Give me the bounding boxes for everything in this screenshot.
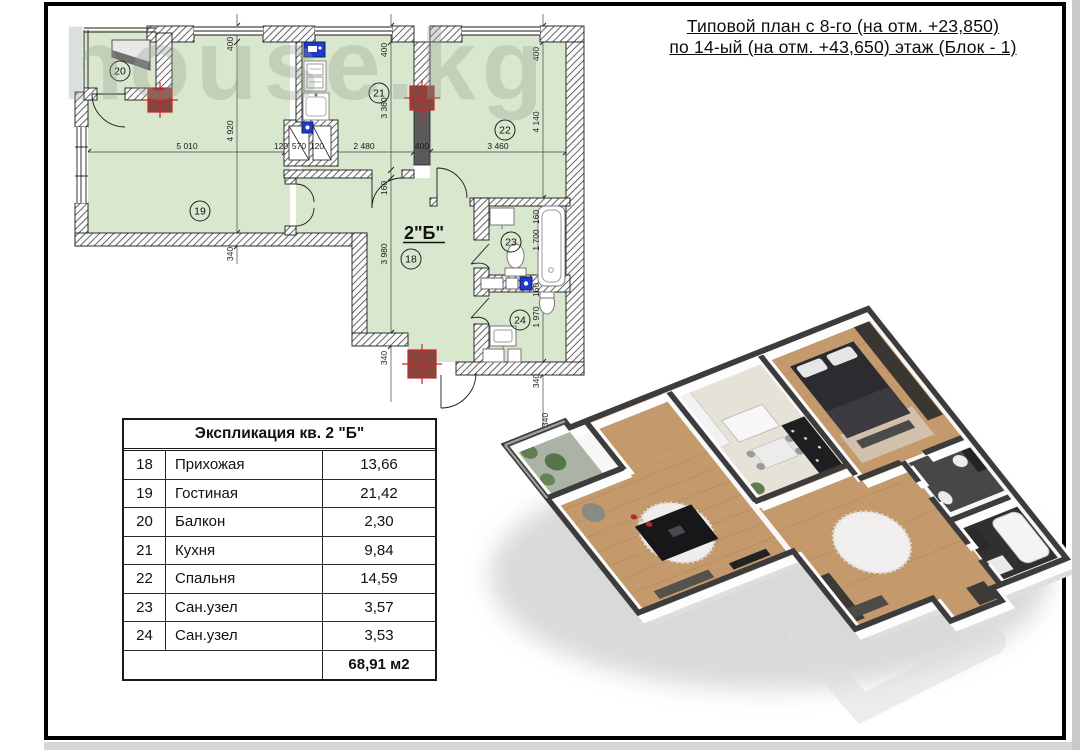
room-area: 21,42	[323, 480, 435, 508]
apartment-label: 2"Б"	[403, 223, 445, 243]
scan-edge	[1072, 0, 1080, 750]
kitchen-fixtures	[302, 42, 329, 133]
room-area: 13,66	[323, 451, 435, 479]
room-name: Сан.узел	[166, 594, 323, 622]
explication-table: Экспликация кв. 2 "Б" 18 Прихожая 13,66 …	[122, 418, 437, 681]
dim-label: 5 010	[176, 141, 198, 151]
dim-label: 160	[379, 181, 389, 195]
room-area: 3,53	[323, 622, 435, 650]
table-total-row: 68,91 м2	[124, 651, 435, 679]
plan-2d: 5 010 120 570 120 2 480 400 3 460 400 4 …	[75, 14, 584, 434]
dim-label: 400	[225, 37, 235, 51]
room-number: 18	[124, 451, 166, 479]
drawing-sheet: 5 010 120 570 120 2 480 400 3 460 400 4 …	[0, 0, 1080, 750]
sheet-title-line2: по 14-ый (на отм. +43,650) этаж (Блок - …	[648, 37, 1038, 58]
room-number: 22	[124, 565, 166, 593]
sheet-title: Типовой план с 8-го (на отм. +23,850) по…	[648, 16, 1038, 58]
svg-text:24: 24	[514, 315, 526, 327]
room-number: 23	[124, 594, 166, 622]
table-row: 20 Балкон 2,30	[124, 508, 435, 537]
table-row: 24 Сан.узел 3,53	[124, 622, 435, 651]
dim-label: 1 700	[531, 229, 541, 251]
room-name: Прихожая	[166, 451, 323, 479]
dim-label: 160	[531, 210, 541, 224]
table-row: 18 Прихожая 13,66	[124, 451, 435, 480]
dim-label: 4 140	[531, 111, 541, 133]
dim-label: 400	[379, 43, 389, 57]
room-name: Гостиная	[166, 480, 323, 508]
bath-divider-fixtures	[481, 277, 532, 290]
dim-label: 4 920	[225, 120, 235, 142]
total-area: 68,91 м2	[323, 651, 435, 679]
dim-label: 1 970	[531, 306, 541, 328]
svg-text:20: 20	[114, 66, 126, 78]
svg-text:18: 18	[405, 254, 417, 266]
room-area: 3,57	[323, 594, 435, 622]
room-name: Спальня	[166, 565, 323, 593]
room-name: Сан.узел	[166, 622, 323, 650]
room-number: 24	[124, 622, 166, 650]
svg-text:2"Б": 2"Б"	[404, 223, 444, 243]
dim-label: 120	[274, 141, 288, 151]
dim-label: 570	[292, 141, 306, 151]
room-area: 2,30	[323, 508, 435, 536]
room-area: 14,59	[323, 565, 435, 593]
room-name: Кухня	[166, 537, 323, 565]
dim-label: 3 360	[379, 97, 389, 119]
dim-label: 340	[379, 351, 389, 365]
dim-label: 120	[310, 141, 324, 151]
sheet-title-line1: Типовой план с 8-го (на отм. +23,850)	[648, 16, 1038, 37]
svg-text:21: 21	[373, 88, 385, 100]
room-number: 20	[124, 508, 166, 536]
toilet-tank-icon	[505, 268, 526, 276]
dim-label: 340	[531, 374, 541, 388]
dim-label: 3 980	[379, 243, 389, 265]
dim-label: 400	[531, 47, 541, 61]
room-number: 21	[124, 537, 166, 565]
table-row: 21 Кухня 9,84	[124, 537, 435, 566]
dim-label: 160	[531, 283, 541, 297]
table-title: Экспликация кв. 2 "Б"	[124, 420, 435, 451]
room-name: Балкон	[166, 508, 323, 536]
room-area: 9,84	[323, 537, 435, 565]
room-number: 19	[124, 480, 166, 508]
svg-text:19: 19	[194, 206, 206, 218]
svg-text:23: 23	[505, 237, 517, 249]
washer-icon	[483, 349, 504, 362]
svg-text:22: 22	[499, 125, 511, 137]
dim-label: 3 460	[487, 141, 509, 151]
dim-label: 2 480	[353, 141, 375, 151]
dim-label: 400	[415, 141, 429, 151]
dim-label: 340	[225, 247, 235, 261]
scan-edge	[44, 742, 1072, 750]
basin-icon	[490, 208, 514, 225]
table-row: 22 Спальня 14,59	[124, 565, 435, 594]
table-row: 19 Гостиная 21,42	[124, 480, 435, 509]
table-row: 23 Сан.узел 3,57	[124, 594, 435, 623]
